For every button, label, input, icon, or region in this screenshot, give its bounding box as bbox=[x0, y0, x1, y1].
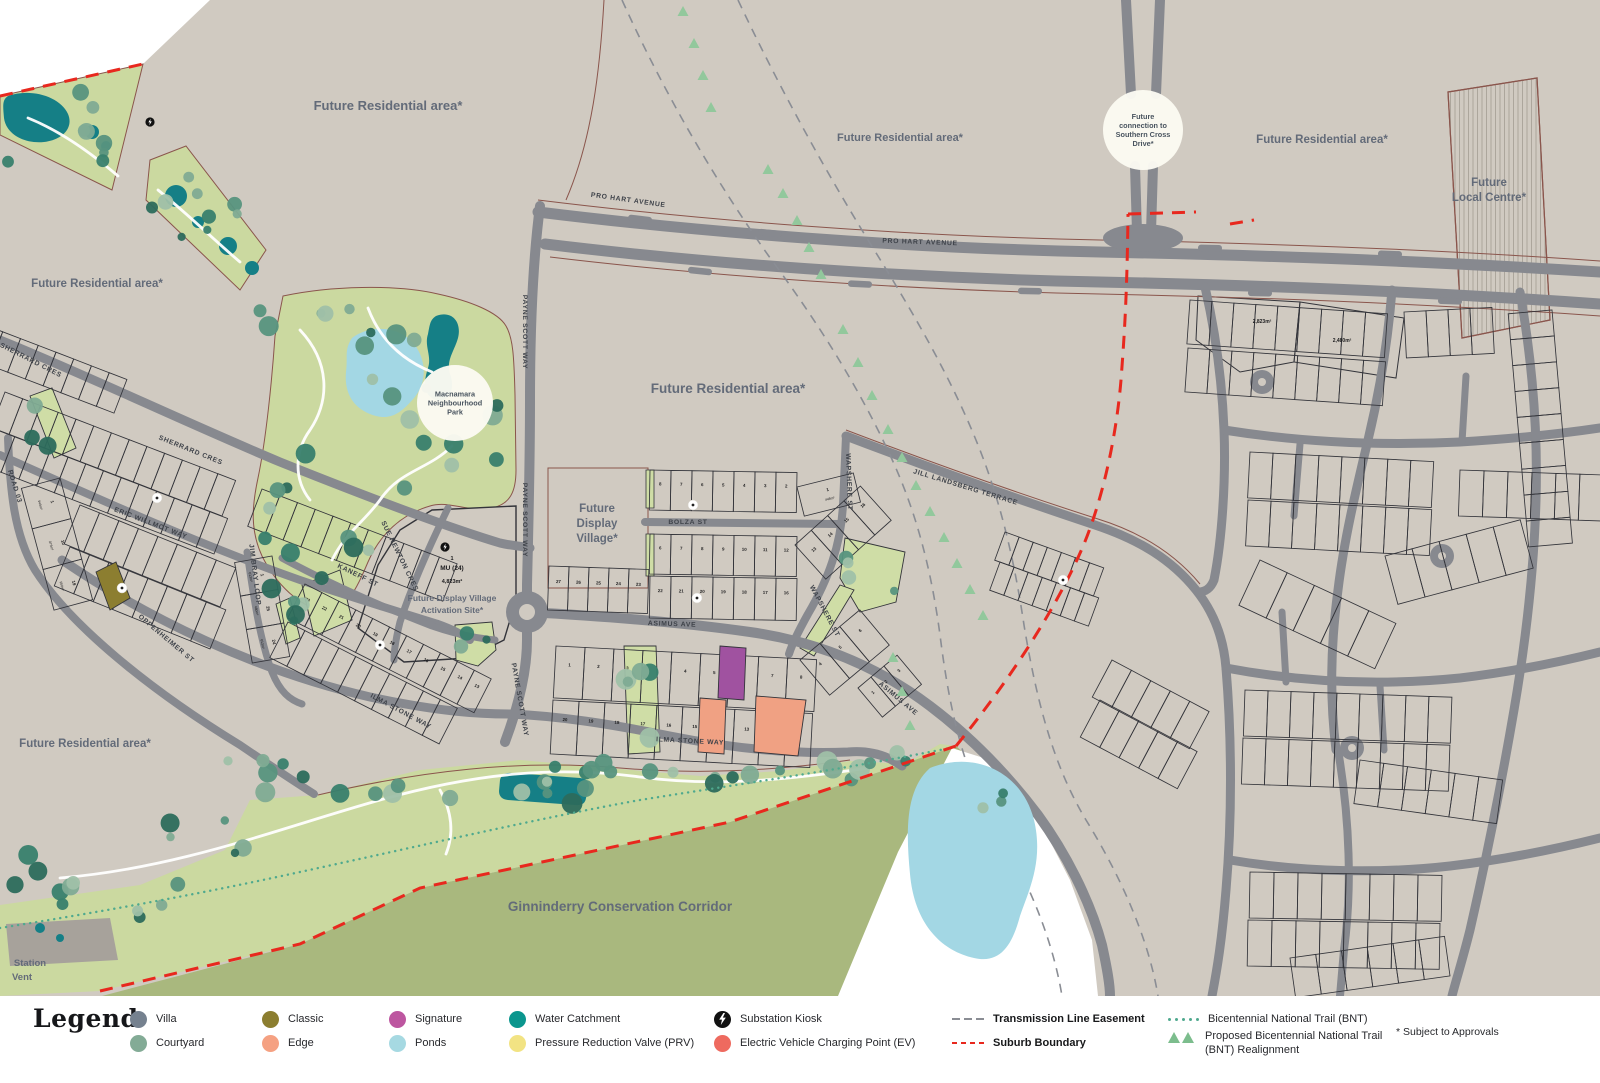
area-label: Future Residential area* bbox=[837, 132, 964, 144]
tree bbox=[460, 626, 474, 640]
legend-label: Signature bbox=[415, 1013, 462, 1025]
tree bbox=[482, 636, 490, 644]
small-label: 2,823m² bbox=[1253, 319, 1272, 325]
tree bbox=[549, 761, 561, 773]
tree bbox=[166, 833, 174, 841]
villa-swatch bbox=[130, 1011, 147, 1028]
ev-swatch bbox=[714, 1035, 731, 1052]
ponds-swatch bbox=[389, 1035, 406, 1052]
grid-stub bbox=[1462, 376, 1466, 442]
lot-number: 24 bbox=[616, 581, 622, 586]
legend-item-suburb-boundary: Suburb Boundary bbox=[952, 1034, 1086, 1052]
tree bbox=[277, 758, 288, 769]
tree bbox=[255, 782, 275, 802]
legend-item-courtyard: Courtyard bbox=[130, 1034, 204, 1052]
classic-swatch bbox=[262, 1011, 279, 1028]
tree bbox=[577, 780, 594, 797]
tree bbox=[391, 778, 406, 793]
label-circle-text: Neighbourhood bbox=[428, 399, 482, 408]
map-marker-dot bbox=[156, 497, 159, 500]
tree bbox=[281, 543, 300, 562]
tree bbox=[642, 763, 658, 779]
area-label: Ginninderry Conservation Corridor bbox=[508, 899, 733, 914]
tree bbox=[843, 557, 854, 568]
tree bbox=[513, 784, 530, 801]
map-canvas: 1949m²10973m²19958m²1613m²25480m²24613m²… bbox=[0, 0, 1600, 996]
tree bbox=[998, 788, 1008, 798]
bus-bay bbox=[1248, 290, 1272, 297]
tree bbox=[317, 306, 333, 322]
tree bbox=[183, 172, 194, 183]
water-catchment-swatch bbox=[509, 1011, 526, 1028]
tree bbox=[259, 316, 279, 336]
legend-label: Substation Kiosk bbox=[740, 1013, 822, 1025]
tree bbox=[344, 304, 354, 314]
legend-label: Transmission Line Easement bbox=[993, 1013, 1145, 1025]
tree bbox=[170, 877, 185, 892]
area-label: Local Centre* bbox=[1452, 192, 1527, 204]
street-label: PAYNE SCOTT WAY bbox=[521, 295, 528, 369]
tree bbox=[632, 663, 649, 680]
legend-label: Suburb Boundary bbox=[993, 1037, 1086, 1049]
tree bbox=[367, 374, 378, 385]
tree bbox=[407, 333, 422, 348]
tree bbox=[454, 639, 468, 653]
area-label: Future Residential area* bbox=[314, 98, 464, 113]
area-label: Future bbox=[579, 503, 615, 515]
map-marker-dot bbox=[692, 504, 695, 507]
lot-number: 11 bbox=[763, 547, 768, 552]
small-label: 4,823m² bbox=[442, 578, 463, 585]
area-label: Station bbox=[14, 958, 46, 969]
triangles-icon bbox=[1168, 1032, 1196, 1043]
bus-bay bbox=[1438, 297, 1462, 304]
tree bbox=[583, 761, 601, 779]
tree bbox=[2, 156, 14, 168]
bus-bay bbox=[1378, 250, 1402, 257]
tree bbox=[87, 101, 100, 114]
legend-item-prv: Pressure Reduction Valve (PRV) bbox=[509, 1034, 694, 1052]
tree bbox=[890, 587, 898, 595]
tree bbox=[604, 765, 617, 778]
courtyard-swatch bbox=[130, 1035, 147, 1052]
tree bbox=[192, 188, 203, 199]
tree bbox=[161, 814, 180, 833]
legend-label: Ponds bbox=[415, 1037, 446, 1049]
legend-label: Courtyard bbox=[156, 1037, 204, 1049]
tree bbox=[254, 304, 267, 317]
area-label: Future Residential area* bbox=[1256, 134, 1388, 146]
lot-number: 19 bbox=[588, 718, 594, 723]
tree bbox=[397, 480, 412, 495]
map-marker-dot bbox=[121, 587, 124, 590]
tree bbox=[741, 766, 759, 784]
tree bbox=[256, 754, 269, 767]
tree bbox=[400, 410, 419, 429]
legend-label: Bicentennial National Trail (BNT) bbox=[1208, 1013, 1368, 1025]
lot-number: 19 bbox=[721, 589, 727, 594]
legend-item-water-catchment: Water Catchment bbox=[509, 1010, 620, 1028]
tree bbox=[489, 452, 504, 467]
lot-number: 18 bbox=[614, 720, 620, 725]
tree bbox=[6, 876, 23, 893]
area-label: Future Residential area* bbox=[651, 381, 806, 396]
tree bbox=[842, 570, 857, 585]
connection-road bbox=[1126, 0, 1131, 94]
tree bbox=[366, 328, 375, 337]
dotted-trail-icon bbox=[1168, 1018, 1199, 1021]
street-label: BOLZA ST bbox=[668, 519, 707, 526]
edge-swatch bbox=[262, 1035, 279, 1052]
tree bbox=[132, 905, 143, 916]
tree bbox=[96, 135, 112, 151]
tree bbox=[363, 545, 374, 556]
lot-number: 23 bbox=[636, 582, 642, 587]
small-label: 1 bbox=[450, 556, 453, 562]
tree bbox=[66, 876, 80, 890]
tree bbox=[542, 788, 552, 798]
label-circle-text: Drive* bbox=[1132, 139, 1153, 148]
water-catchment bbox=[35, 923, 45, 933]
substation-kiosk-icon bbox=[714, 1011, 731, 1028]
lot-number: 20 bbox=[562, 717, 568, 722]
tree bbox=[221, 816, 229, 824]
cul-de-sac-island bbox=[1348, 744, 1356, 752]
legend-item-ev: Electric Vehicle Charging Point (EV) bbox=[714, 1034, 915, 1052]
legend-panel: Legend Villa Courtyard Classic Edge Sign… bbox=[0, 996, 1600, 1083]
lot-number: 12 bbox=[784, 548, 790, 553]
tree bbox=[386, 324, 406, 344]
tree bbox=[227, 197, 242, 212]
small-label: 2,480m² bbox=[1333, 338, 1352, 344]
tree bbox=[29, 862, 48, 881]
connection-road bbox=[1151, 166, 1153, 232]
roundabout-island bbox=[519, 604, 535, 620]
tree bbox=[270, 482, 286, 498]
prv-swatch bbox=[509, 1035, 526, 1052]
connection-road bbox=[1135, 166, 1137, 232]
tree bbox=[24, 430, 40, 446]
legend-item-ponds: Ponds bbox=[389, 1034, 446, 1052]
tree bbox=[233, 209, 242, 218]
label-circle-text: Southern Cross bbox=[1116, 130, 1171, 139]
tree bbox=[315, 571, 329, 585]
tree bbox=[18, 845, 38, 865]
tree bbox=[368, 786, 383, 801]
legend-item-edge: Edge bbox=[262, 1034, 314, 1052]
tree bbox=[331, 784, 350, 803]
lot-number: 17 bbox=[763, 590, 769, 595]
water-catchment bbox=[56, 934, 64, 942]
tree bbox=[344, 538, 364, 558]
tree bbox=[57, 898, 69, 910]
legend-title: Legend bbox=[33, 1004, 139, 1033]
legend-item-substation: Substation Kiosk bbox=[714, 1010, 822, 1028]
legend-label: Water Catchment bbox=[535, 1013, 620, 1025]
tree bbox=[78, 123, 95, 140]
lot-number: 15 bbox=[692, 724, 698, 729]
bus-bay bbox=[1018, 288, 1042, 295]
lot-number: 22 bbox=[658, 588, 664, 593]
tree bbox=[156, 899, 167, 910]
label-circle-text: Future bbox=[1132, 112, 1155, 121]
lot-number: 10 bbox=[742, 547, 748, 552]
tree bbox=[39, 437, 57, 455]
area-label: Future Display Village bbox=[408, 593, 497, 603]
tree bbox=[223, 756, 232, 765]
interchange bbox=[1103, 224, 1183, 252]
lot-number: 25 bbox=[596, 580, 602, 585]
legend-item-easement: Transmission Line Easement bbox=[952, 1010, 1145, 1028]
tree bbox=[178, 233, 186, 241]
tree bbox=[203, 226, 211, 234]
legend-label: Proposed Bicentennial National Trail (BN… bbox=[1205, 1030, 1383, 1058]
masterplan-page: 1949m²10973m²19958m²1613m²25480m²24613m²… bbox=[0, 0, 1600, 1083]
legend-label: Edge bbox=[288, 1037, 314, 1049]
lot-number: 13 bbox=[744, 727, 750, 732]
cul-de-sac-island bbox=[1258, 378, 1266, 386]
label-circle-text: Macnamara bbox=[435, 390, 476, 399]
area-label: Future Residential area* bbox=[31, 278, 163, 290]
map-marker-dot bbox=[1062, 579, 1065, 582]
area-label: Activation Site* bbox=[421, 605, 484, 615]
lot-number: 16 bbox=[666, 722, 672, 727]
street-label: PAYNE SCOTT WAY bbox=[521, 483, 528, 557]
legend-label: Classic bbox=[288, 1013, 323, 1025]
tree bbox=[296, 444, 316, 464]
tree bbox=[355, 336, 374, 355]
tree bbox=[72, 84, 89, 101]
lot-number: 18 bbox=[742, 590, 748, 595]
tree bbox=[705, 774, 724, 793]
tree bbox=[262, 579, 282, 599]
red-dashed-line-icon bbox=[952, 1042, 984, 1045]
water-catchment bbox=[245, 261, 259, 275]
legend-item-signature: Signature bbox=[389, 1010, 462, 1028]
tree bbox=[158, 194, 174, 210]
tree bbox=[27, 398, 43, 414]
lot-number: 21 bbox=[679, 588, 685, 593]
tree bbox=[416, 435, 432, 451]
lot-number: 16 bbox=[784, 590, 790, 595]
tree bbox=[977, 802, 988, 813]
small-label: MU (24) bbox=[440, 565, 463, 572]
map-marker-dot bbox=[696, 597, 699, 600]
approvals-note: * Subject to Approvals bbox=[1396, 1026, 1499, 1038]
tree bbox=[442, 790, 458, 806]
legend-item-villa: Villa bbox=[130, 1010, 177, 1028]
area-label: Village* bbox=[576, 533, 618, 545]
legend-label: Pressure Reduction Valve (PRV) bbox=[535, 1037, 694, 1049]
tree bbox=[996, 796, 1006, 806]
tree bbox=[146, 202, 158, 214]
dashed-line-icon bbox=[952, 1018, 984, 1021]
tree bbox=[668, 767, 679, 778]
tree bbox=[297, 770, 310, 783]
label-circle-text: connection to bbox=[1119, 121, 1167, 130]
tree bbox=[623, 677, 633, 687]
signature-lot bbox=[718, 646, 746, 700]
tree bbox=[542, 777, 552, 787]
edge-lot bbox=[754, 696, 806, 756]
area-label: Future bbox=[1471, 177, 1507, 189]
bus-bay bbox=[848, 280, 872, 288]
tree bbox=[258, 532, 272, 546]
tree bbox=[96, 154, 109, 167]
signature-swatch bbox=[389, 1011, 406, 1028]
area-label: Future Residential area* bbox=[19, 738, 151, 750]
map-marker-dot bbox=[379, 644, 382, 647]
area-label: Vent bbox=[12, 972, 33, 983]
tree bbox=[202, 210, 216, 224]
tree bbox=[383, 387, 401, 405]
connection-road bbox=[1156, 0, 1160, 94]
tree bbox=[263, 502, 276, 515]
lot-number: 26 bbox=[576, 580, 582, 585]
tree bbox=[286, 605, 305, 624]
tree bbox=[444, 458, 459, 473]
legend-item-bnt: Bicentennial National Trail (BNT) bbox=[1168, 1010, 1368, 1028]
tree bbox=[726, 771, 738, 783]
lot-number: 27 bbox=[556, 579, 562, 584]
lot-number: 17 bbox=[640, 721, 646, 726]
grid-stub bbox=[1282, 612, 1286, 682]
area-label: Display bbox=[577, 518, 619, 530]
tree bbox=[231, 849, 239, 857]
masterplan-map: 1949m²10973m²19958m²1613m²25480m²24613m²… bbox=[0, 0, 1600, 996]
lot-number: 20 bbox=[700, 589, 706, 594]
legend-label: Villa bbox=[156, 1013, 177, 1025]
legend-label: Electric Vehicle Charging Point (EV) bbox=[740, 1037, 915, 1049]
legend-item-bnt-realignment: Proposed Bicentennial National Trail (BN… bbox=[1168, 1030, 1383, 1048]
label-circle-text: Park bbox=[447, 408, 464, 417]
tree bbox=[775, 766, 785, 776]
bus-bay bbox=[1198, 245, 1222, 252]
legend-item-classic: Classic bbox=[262, 1010, 323, 1028]
